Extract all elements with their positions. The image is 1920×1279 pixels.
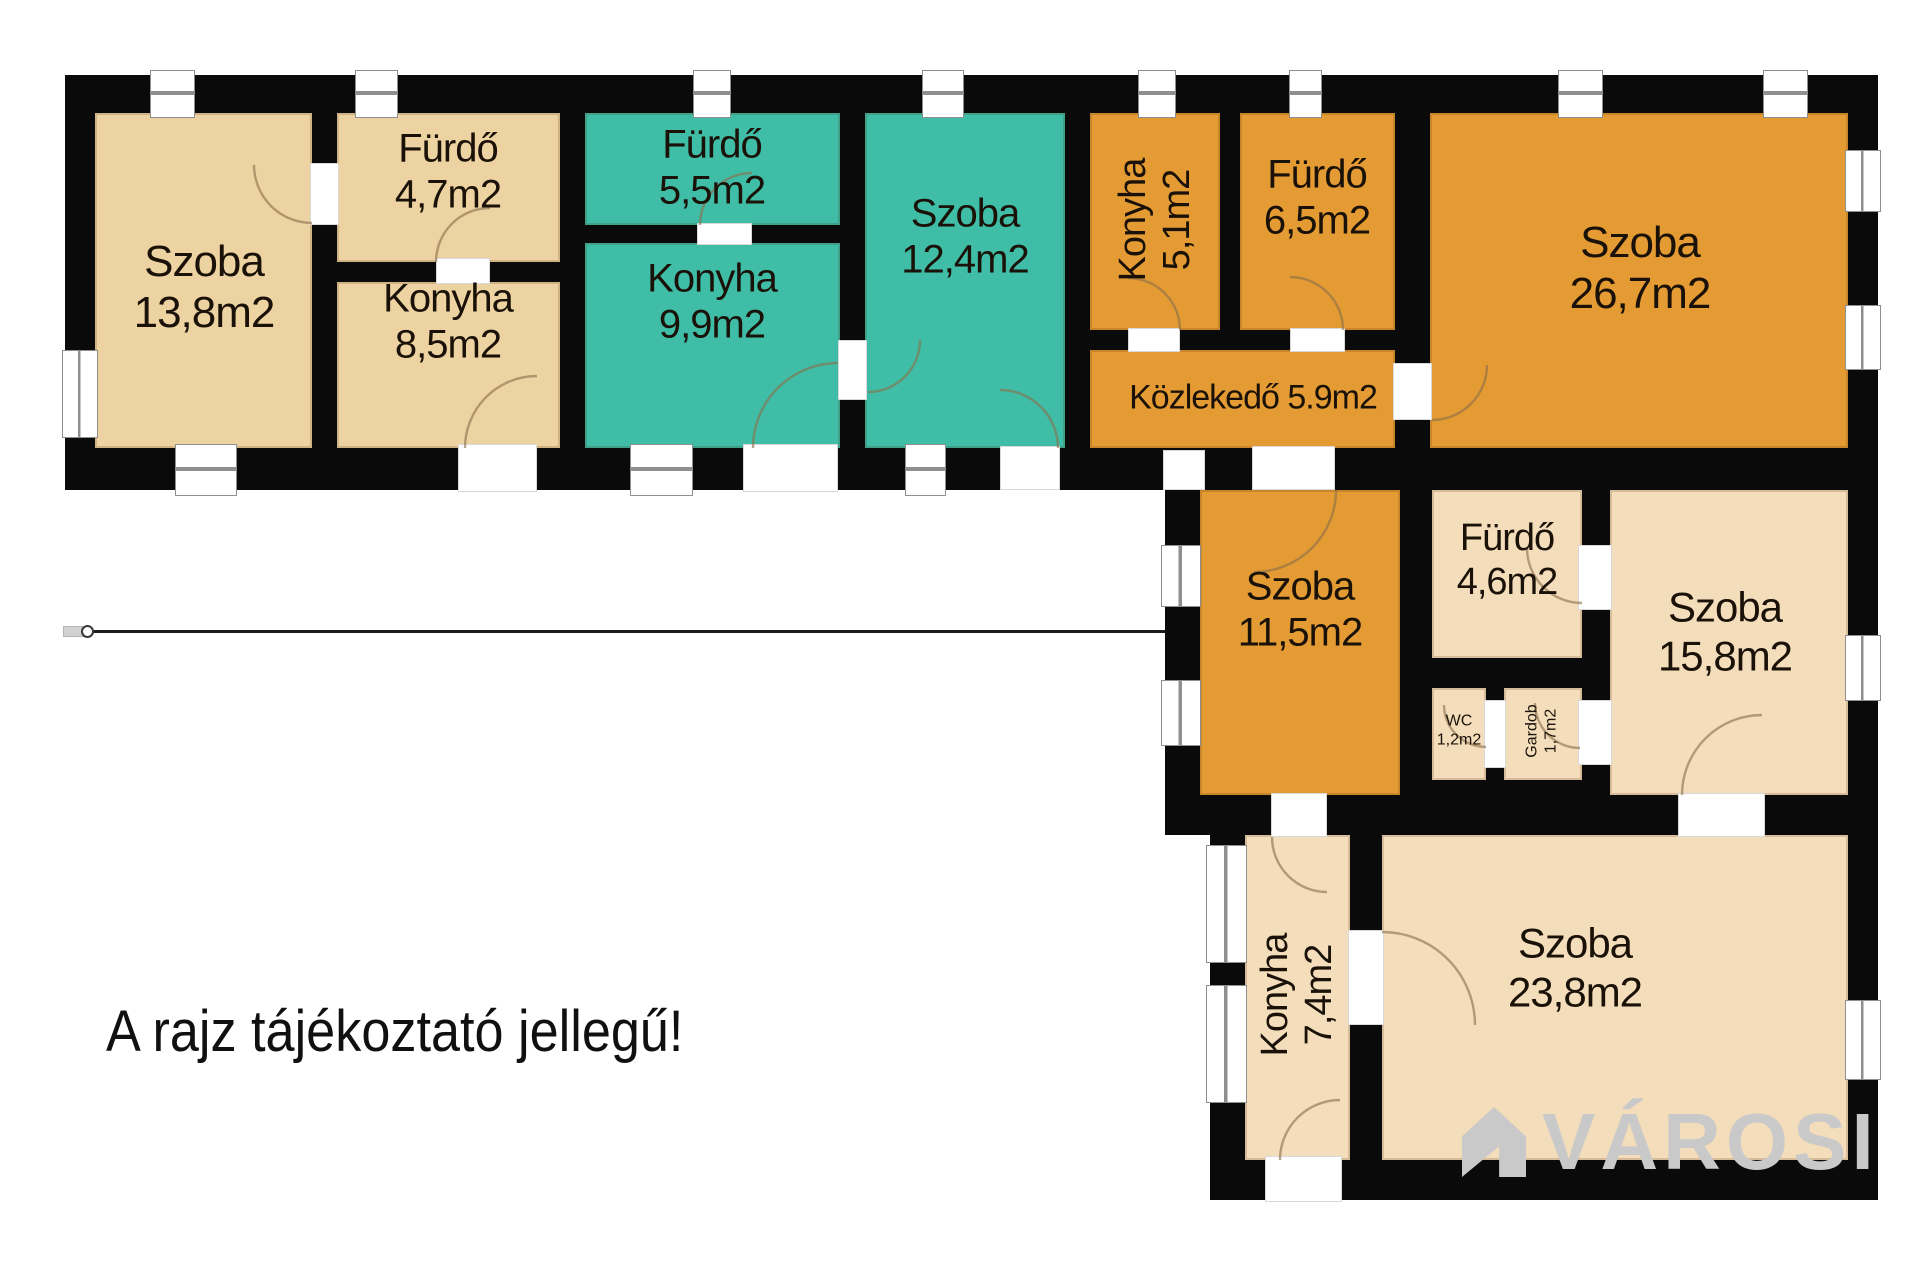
room-name-label: Szoba [1246, 565, 1354, 609]
room-area-label: 15,8m2 [1658, 632, 1792, 679]
room-area-label: 4,7m2 [395, 173, 501, 217]
floor-plan-canvas: Szoba13,8m2 Fürdő4,7m2 Konyha8,5m2 Fürdő… [0, 0, 1920, 1279]
room-name-label: Gardob [1523, 704, 1540, 757]
label-wc: WC1,2m2 [1437, 712, 1481, 749]
door-swing-arc [465, 376, 537, 448]
room-area-label: 7,4m2 [1298, 945, 1340, 1046]
label-furdo-6-5: Fürdő6,5m2 [1264, 152, 1370, 245]
label-szoba-12-4: Szoba12,4m2 [901, 191, 1028, 284]
room-name-label: Fürdő [1267, 153, 1367, 197]
label-szoba-11-5: Szoba11,5m2 [1238, 564, 1362, 657]
room-area-label: 26,7m2 [1570, 269, 1711, 318]
door-swing-arc [1128, 278, 1180, 330]
room-area-label: 23,8m2 [1508, 968, 1642, 1015]
label-szoba-13-8: Szoba13,8m2 [134, 236, 275, 338]
room-name-label: Fürdő [398, 127, 498, 171]
label-szoba-15-8: Szoba15,8m2 [1658, 583, 1792, 680]
watermark-text: VÁROSI [1542, 1102, 1879, 1182]
label-kozlekedo: Közlekedő 5.9m2 [1129, 378, 1377, 417]
door-swing-arc [254, 165, 312, 223]
door-swing-arc [1272, 837, 1327, 892]
room-area-label: 1,7m2 [1542, 709, 1559, 753]
room-area-label: 6,5m2 [1264, 199, 1370, 243]
room-name-label: Közlekedő [1129, 378, 1279, 416]
room-area-label: 5.9m2 [1287, 378, 1377, 416]
label-konyha-5-1: Konyha5,1m2 [1111, 159, 1199, 282]
watermark: VÁROSI [1462, 1104, 1879, 1180]
label-konyha-9-9: Konyha9,9m2 [647, 256, 777, 349]
room-area-label: 5,5m2 [659, 169, 765, 213]
room-area-label: 9,9m2 [659, 303, 765, 347]
room-name-label: Szoba [144, 237, 264, 286]
room-area-label: 13,8m2 [134, 288, 275, 337]
door-swing-arc [753, 363, 838, 448]
room-name-label: Szoba [911, 192, 1019, 236]
label-furdo-4-7: Fürdő4,7m2 [395, 126, 501, 219]
door-swing-arc [1382, 932, 1475, 1025]
label-szoba-23-8: Szoba23,8m2 [1508, 919, 1642, 1016]
label-konyha-7-4: Konyha7,4m2 [1253, 934, 1341, 1057]
room-area-label: 5,1m2 [1156, 170, 1198, 271]
door-swing-arc [1280, 1100, 1340, 1160]
room-area-label: 1,2m2 [1437, 731, 1481, 748]
door-swing-arc [1254, 490, 1336, 572]
room-name-label: WC [1446, 712, 1473, 729]
room-area-label: 8,5m2 [395, 323, 501, 367]
label-furdo-5-5: Fürdő5,5m2 [659, 122, 765, 215]
label-furdo-4-6: Fürdő4,6m2 [1457, 516, 1558, 604]
house-logo-icon [1462, 1107, 1526, 1177]
room-name-label: Konyha [1112, 159, 1154, 282]
room-name-label: Szoba [1580, 218, 1700, 267]
room-name-label: Konyha [383, 277, 513, 321]
label-szoba-26-7: Szoba26,7m2 [1570, 217, 1711, 319]
room-name-label: Szoba [1668, 583, 1782, 630]
room-area-label: 4,6m2 [1457, 561, 1558, 603]
door-swing-arc [868, 340, 920, 392]
disclaimer-text: A rajz tájékoztató jellegű! [106, 998, 683, 1065]
room-name-label: Fürdő [662, 123, 762, 167]
room-name-label: Fürdő [1460, 517, 1554, 559]
room-name-label: Konyha [1254, 934, 1296, 1057]
room-area-label: 12,4m2 [901, 238, 1028, 282]
door-swing-arc [1290, 277, 1343, 330]
label-konyha-8-5: Konyha8,5m2 [383, 276, 513, 369]
room-name-label: Konyha [647, 257, 777, 301]
label-gardob: Gardob1,7m2 [1523, 704, 1560, 757]
room-area-label: 11,5m2 [1238, 611, 1362, 655]
door-swing-arc [1432, 365, 1487, 420]
door-swing-arc [1000, 390, 1058, 448]
room-name-label: Szoba [1518, 919, 1632, 966]
door-swing-arc [1682, 715, 1762, 795]
